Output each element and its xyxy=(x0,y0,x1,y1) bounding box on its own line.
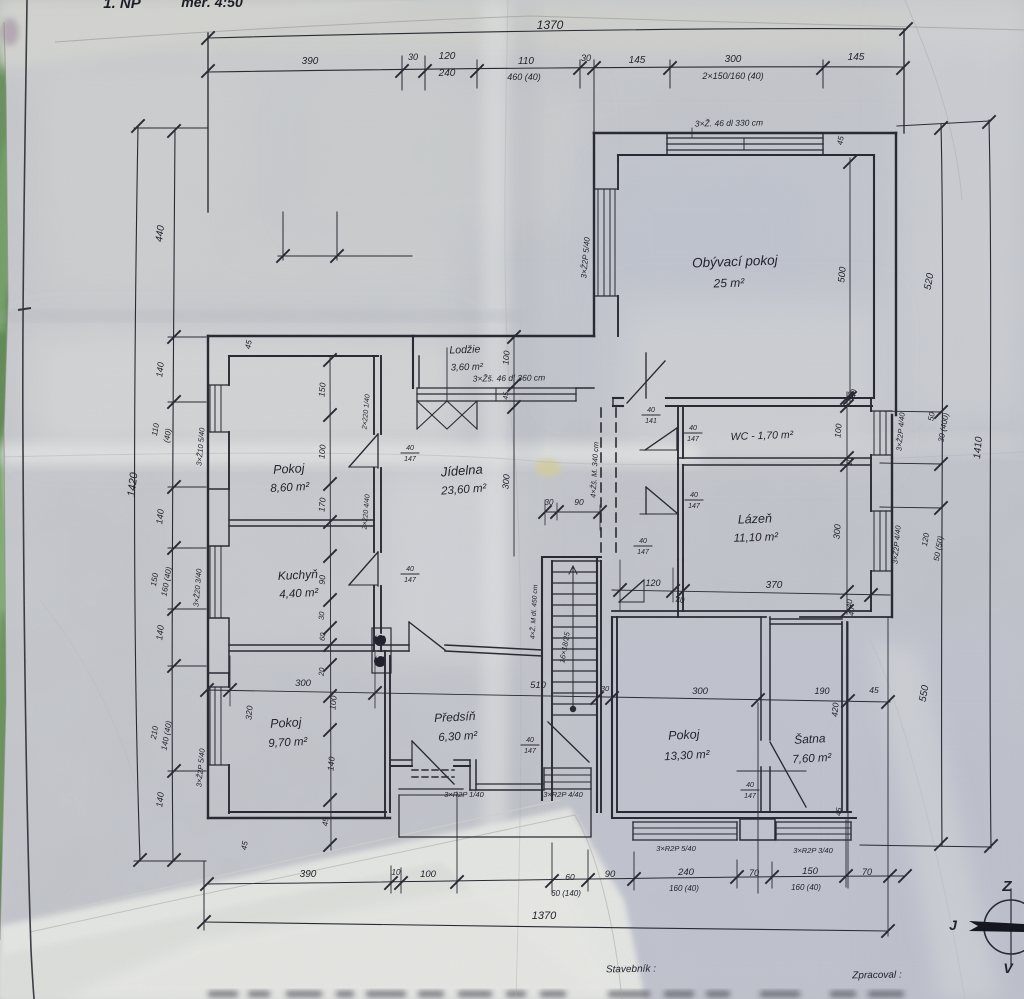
svg-text:10: 10 xyxy=(392,868,401,877)
svg-text:147: 147 xyxy=(404,456,417,463)
svg-text:190: 190 xyxy=(814,686,829,696)
svg-text:170: 170 xyxy=(316,497,327,512)
svg-text:160 (40): 160 (40) xyxy=(669,884,699,893)
svg-text:140: 140 xyxy=(325,756,336,771)
svg-text:145: 145 xyxy=(848,52,865,63)
svg-text:140: 140 xyxy=(154,509,166,525)
svg-text:45: 45 xyxy=(834,806,844,816)
svg-text:100: 100 xyxy=(316,444,327,459)
svg-text:měř. 4:50: měř. 4:50 xyxy=(181,0,243,10)
svg-text:Kuchyň: Kuchyň xyxy=(277,567,318,583)
svg-text:3×Žš. 46 dl 360 cm: 3×Žš. 46 dl 360 cm xyxy=(473,372,546,383)
svg-text:Pokoj: Pokoj xyxy=(668,727,701,743)
svg-text:8,60 m²: 8,60 m² xyxy=(270,481,311,495)
svg-text:500: 500 xyxy=(836,266,848,283)
svg-text:40: 40 xyxy=(526,737,534,744)
svg-text:3×R2P 5/40: 3×R2P 5/40 xyxy=(656,844,696,853)
svg-text:40: 40 xyxy=(690,492,698,499)
svg-text:147: 147 xyxy=(744,793,757,800)
svg-text:40: 40 xyxy=(647,407,655,414)
svg-text:Lodžie: Lodžie xyxy=(449,343,481,356)
svg-text:60: 60 xyxy=(565,872,575,882)
svg-text:10: 10 xyxy=(846,390,856,400)
svg-text:147: 147 xyxy=(687,436,700,443)
svg-text:13,30 m²: 13,30 m² xyxy=(664,749,711,763)
svg-text:10: 10 xyxy=(845,456,855,466)
svg-text:510: 510 xyxy=(530,680,547,691)
svg-text:30: 30 xyxy=(601,684,610,693)
svg-text:Šatna: Šatna xyxy=(794,730,826,747)
svg-text:300: 300 xyxy=(500,474,511,490)
svg-text:300: 300 xyxy=(295,678,312,689)
svg-text:3×R2P 3/40: 3×R2P 3/40 xyxy=(793,846,833,855)
svg-text:1410: 1410 xyxy=(972,436,985,460)
svg-text:140: 140 xyxy=(154,362,166,378)
svg-text:100: 100 xyxy=(500,350,511,365)
svg-text:J: J xyxy=(949,917,958,933)
svg-text:40: 40 xyxy=(689,425,697,432)
svg-text:390: 390 xyxy=(302,56,319,67)
svg-text:320: 320 xyxy=(243,705,254,720)
svg-text:40: 40 xyxy=(746,782,754,789)
svg-text:240: 240 xyxy=(677,867,695,878)
svg-text:90: 90 xyxy=(605,869,616,880)
svg-text:1. NP: 1. NP xyxy=(103,0,142,12)
svg-text:Pokoj: Pokoj xyxy=(270,715,303,731)
svg-text:Obývací pokoj: Obývací pokoj xyxy=(692,252,779,270)
svg-text:40: 40 xyxy=(406,566,414,573)
svg-text:147: 147 xyxy=(524,748,537,755)
svg-text:440: 440 xyxy=(154,224,167,242)
svg-text:100: 100 xyxy=(832,423,843,438)
svg-text:40: 40 xyxy=(676,596,685,605)
svg-text:3×R2P 4/40: 3×R2P 4/40 xyxy=(543,790,583,799)
svg-text:40: 40 xyxy=(847,606,857,616)
svg-text:1370: 1370 xyxy=(532,910,557,922)
svg-text:160 (40): 160 (40) xyxy=(791,883,821,892)
svg-text:141: 141 xyxy=(645,418,657,425)
svg-text:Předsíň: Předsíň xyxy=(434,709,476,725)
svg-text:30: 30 xyxy=(408,52,418,62)
svg-text:300: 300 xyxy=(725,54,742,65)
svg-text:60: 60 xyxy=(318,631,328,641)
svg-text:420: 420 xyxy=(829,702,840,717)
svg-text:370: 370 xyxy=(766,580,783,591)
svg-text:150: 150 xyxy=(316,382,327,397)
svg-text:90: 90 xyxy=(574,497,584,507)
svg-text:140: 140 xyxy=(154,792,166,808)
svg-text:60 (140): 60 (140) xyxy=(551,889,581,898)
svg-text:9,70 m²: 9,70 m² xyxy=(268,736,309,750)
svg-text:70: 70 xyxy=(749,868,759,878)
svg-text:240: 240 xyxy=(438,68,456,79)
svg-text:1370: 1370 xyxy=(537,18,564,32)
svg-text:40: 40 xyxy=(639,538,647,545)
svg-text:45: 45 xyxy=(869,685,879,695)
svg-text:Stavebník :: Stavebník : xyxy=(606,964,656,976)
svg-text:300: 300 xyxy=(831,524,842,540)
svg-text:11,10 m²: 11,10 m² xyxy=(733,531,779,545)
svg-text:300: 300 xyxy=(692,686,709,697)
svg-text:3×R2P 1/40: 3×R2P 1/40 xyxy=(444,790,484,799)
svg-text:120: 120 xyxy=(439,51,456,62)
svg-text:Zpracoval :: Zpracoval : xyxy=(851,970,902,982)
svg-text:150: 150 xyxy=(802,866,819,877)
svg-text:30: 30 xyxy=(545,498,554,507)
svg-text:147: 147 xyxy=(637,549,650,556)
svg-text:2×150/160 (40): 2×150/160 (40) xyxy=(701,71,763,81)
svg-text:Jídelna: Jídelna xyxy=(439,462,483,480)
svg-text:30: 30 xyxy=(317,610,327,620)
svg-text:140: 140 xyxy=(154,625,166,641)
svg-text:Lázeň: Lázeň xyxy=(738,511,773,526)
svg-text:100: 100 xyxy=(420,869,437,880)
svg-text:Pokoj: Pokoj xyxy=(273,461,306,477)
svg-text:70: 70 xyxy=(862,867,872,877)
svg-text:145: 145 xyxy=(629,55,646,66)
svg-text:90: 90 xyxy=(317,574,328,585)
svg-text:147: 147 xyxy=(404,577,417,584)
svg-text:460 (40): 460 (40) xyxy=(507,72,541,82)
svg-text:30: 30 xyxy=(581,53,591,63)
svg-text:4,40 m²: 4,40 m² xyxy=(279,587,320,601)
svg-text:3×Ž. 46 dl 330 cm: 3×Ž. 46 dl 330 cm xyxy=(695,117,763,128)
svg-text:120: 120 xyxy=(645,578,660,588)
svg-text:25 m²: 25 m² xyxy=(712,275,745,290)
svg-text:WC - 1,70 m²: WC - 1,70 m² xyxy=(730,429,793,443)
svg-text:45: 45 xyxy=(503,392,511,400)
svg-text:390: 390 xyxy=(300,869,317,880)
svg-text:Z: Z xyxy=(1001,878,1012,895)
svg-text:20: 20 xyxy=(317,666,327,677)
svg-text:7,60 m²: 7,60 m² xyxy=(792,752,833,766)
svg-text:147: 147 xyxy=(688,503,701,510)
svg-text:40: 40 xyxy=(845,598,855,608)
svg-text:100: 100 xyxy=(327,695,338,710)
svg-text:110: 110 xyxy=(518,56,534,67)
svg-text:6,30 m²: 6,30 m² xyxy=(438,730,479,744)
svg-text:45: 45 xyxy=(321,816,331,826)
svg-text:3,60 m²: 3,60 m² xyxy=(451,361,484,373)
svg-text:40: 40 xyxy=(406,445,414,452)
